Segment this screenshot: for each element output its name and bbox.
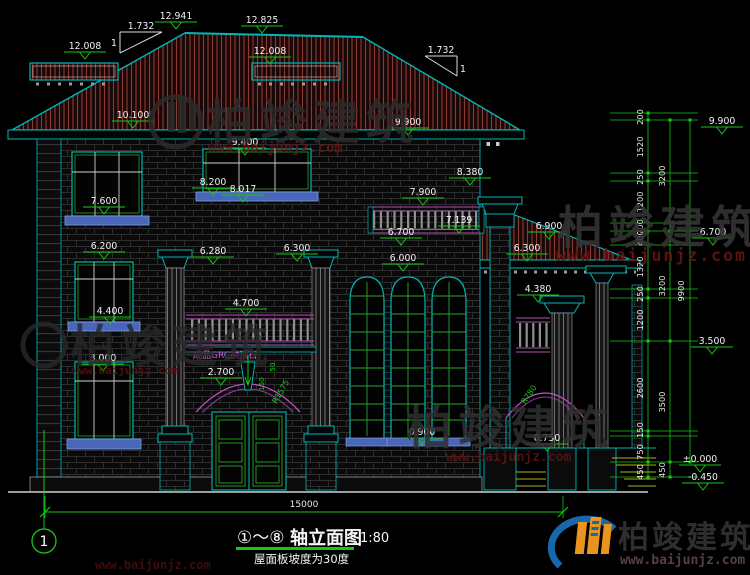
title-scale: 1:80 xyxy=(360,531,389,546)
dim-chain: 750 xyxy=(635,444,645,460)
level-12941: 12.941 xyxy=(160,11,193,22)
level-6300: 6.300 xyxy=(514,243,541,254)
title-note: 屋面板坡度为30度 xyxy=(254,552,350,566)
right-dimension-strip: 200 1520 250 1200 200 400 1320 250 1200 … xyxy=(610,109,698,480)
level-4700: 4.700 xyxy=(233,298,260,309)
title-block: ①～⑧ 轴立面图 1:80 屋面板坡度为30度 xyxy=(236,527,389,566)
slope-run-right: 1.732 xyxy=(428,45,455,56)
level-10100: 10.100 xyxy=(117,110,150,121)
site-logo: 柏竣建筑 www.baijunjz.com xyxy=(551,517,750,568)
dim-floor: 3500 xyxy=(657,392,667,413)
dim-chain: 200 xyxy=(635,109,645,125)
level-4380: 4.380 xyxy=(525,284,552,295)
dim-total-height: 9900 xyxy=(676,281,686,302)
level-7139: 7.139 xyxy=(446,215,473,226)
bottom-dimension: 15000 xyxy=(40,496,568,518)
porch-column xyxy=(586,266,626,490)
level-12008: 12.008 xyxy=(254,46,287,57)
corner-quoin xyxy=(37,139,61,477)
level-7900: 7.900 xyxy=(410,187,437,198)
level-6700: 6.700 xyxy=(388,227,415,238)
slope-rise-right: 1 xyxy=(460,64,466,75)
level-4400: 4.400 xyxy=(97,306,124,317)
logo-url-text: www.baijunjz.com xyxy=(620,553,745,568)
level-7600: 7.600 xyxy=(91,196,118,207)
dim-chain: 250 xyxy=(635,169,645,185)
level-12825: 12.825 xyxy=(246,15,279,26)
watermark-brand: 柏竣建筑 xyxy=(406,401,614,455)
level-8200: 8.200 xyxy=(200,177,227,188)
watermark-url-bottom: www.baijunjz.com xyxy=(95,558,211,572)
cad-elevation-drawing: 200 1520 250 1200 200 400 1320 250 1200 … xyxy=(0,0,750,575)
title-axes: ①～⑧ xyxy=(237,528,284,548)
window-sill xyxy=(346,438,388,446)
dim-floor: 450 xyxy=(657,462,667,478)
level-9900-strip: 9.900 xyxy=(709,116,736,127)
axis-number: 1 xyxy=(40,534,49,550)
slope-rise-left: 1 xyxy=(111,38,117,49)
dim-floor: 3200 xyxy=(657,276,667,297)
note-dim-150: 150 xyxy=(258,377,266,390)
level-0000-strip: ±0.000 xyxy=(683,454,717,465)
dim-chain: 450 xyxy=(635,464,645,480)
slope-run-left: 1.732 xyxy=(128,21,155,32)
entrance-double-door xyxy=(212,412,286,490)
window-3f-left xyxy=(65,152,149,225)
watermark-right: 柏竣建筑 www.baijunjz.com xyxy=(556,201,750,265)
slope-triangle-right xyxy=(425,56,457,76)
title-underline xyxy=(236,547,354,550)
level-6200: 6.200 xyxy=(91,241,118,252)
level-8017: 8.017 xyxy=(230,184,257,195)
watermark-url: www.baijunjz.com xyxy=(72,364,178,377)
level-m0450-strip: -0.450 xyxy=(688,472,718,483)
watermark-url: www.baijunjz.com xyxy=(446,450,571,465)
title-name: 轴立面图 xyxy=(290,527,362,549)
dim-chain: 1200 xyxy=(635,310,645,331)
dim-total-width: 15000 xyxy=(290,500,319,510)
dim-chain: 250 xyxy=(635,286,645,302)
logo-brand-text: 柏竣建筑 xyxy=(618,520,750,556)
watermark-url: www.baijunjz.com xyxy=(556,246,747,265)
window-sill xyxy=(67,439,141,449)
watermark-url: www.baijunjz.com xyxy=(208,140,343,156)
level-12008: 12.008 xyxy=(69,41,102,52)
level-6000: 6.000 xyxy=(390,253,417,264)
level-8380: 8.380 xyxy=(457,167,484,178)
elevation-canvas: 200 1520 250 1200 200 400 1320 250 1200 … xyxy=(0,0,750,575)
dim-chain: 2600 xyxy=(635,378,645,399)
dim-chain: 150 xyxy=(635,422,645,438)
level-6280: 6.280 xyxy=(200,246,227,257)
dim-chain: 1520 xyxy=(635,137,645,158)
level-3500-strip: 3.500 xyxy=(699,336,726,347)
window-sill xyxy=(65,216,149,225)
porch-balustrade-2f xyxy=(516,318,550,352)
dim-floor: 3200 xyxy=(657,166,667,187)
level-6300: 6.300 xyxy=(284,243,311,254)
